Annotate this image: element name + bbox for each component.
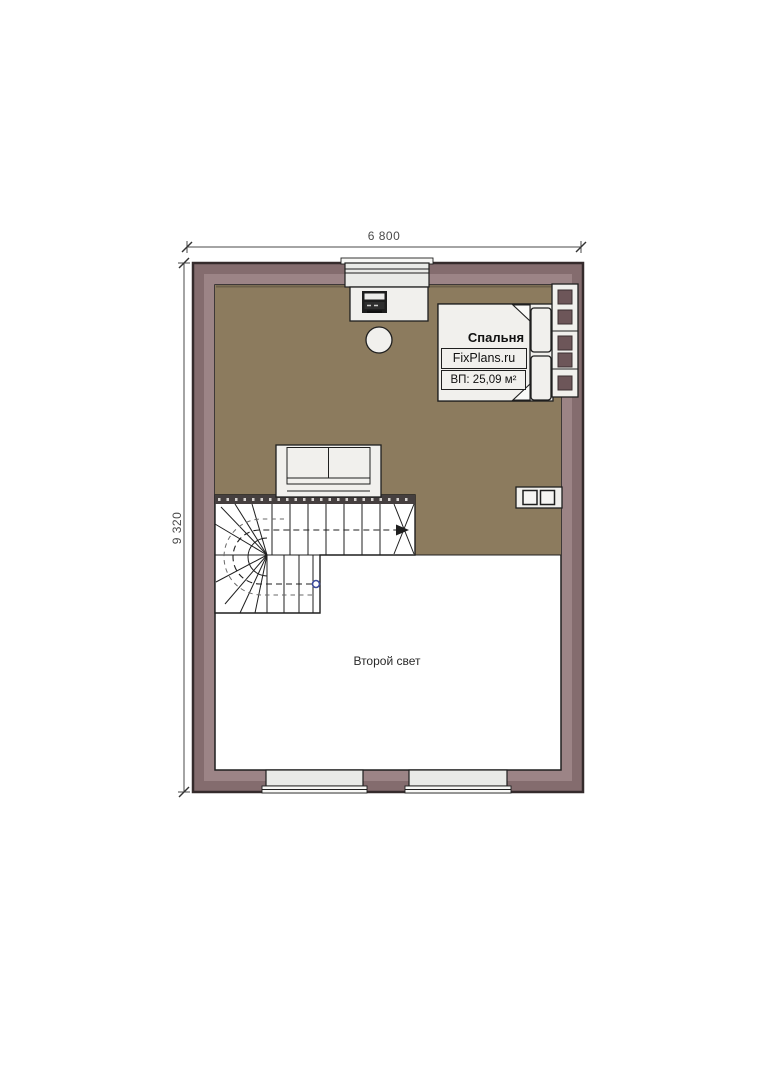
second-light-label: Второй свет	[326, 654, 448, 668]
small-cabinet	[516, 487, 562, 508]
desk	[350, 287, 428, 321]
sofa	[276, 445, 381, 497]
top-window	[345, 263, 429, 287]
bottom-window-right	[409, 770, 507, 786]
room-area-label: ВП: 25,09 м²	[441, 370, 526, 390]
bottom-window-left	[266, 770, 363, 786]
room-name-label: Спальня	[440, 330, 552, 345]
pillow	[531, 356, 551, 400]
watermark-label: FixPlans.ru	[441, 348, 527, 369]
computer-monitor	[362, 291, 387, 313]
dimension-width-label: 6 800	[187, 229, 581, 243]
stool	[366, 327, 392, 353]
drawer-unit	[552, 284, 578, 397]
walk-line-start	[313, 581, 320, 588]
floor-plan-canvas	[0, 0, 763, 1080]
